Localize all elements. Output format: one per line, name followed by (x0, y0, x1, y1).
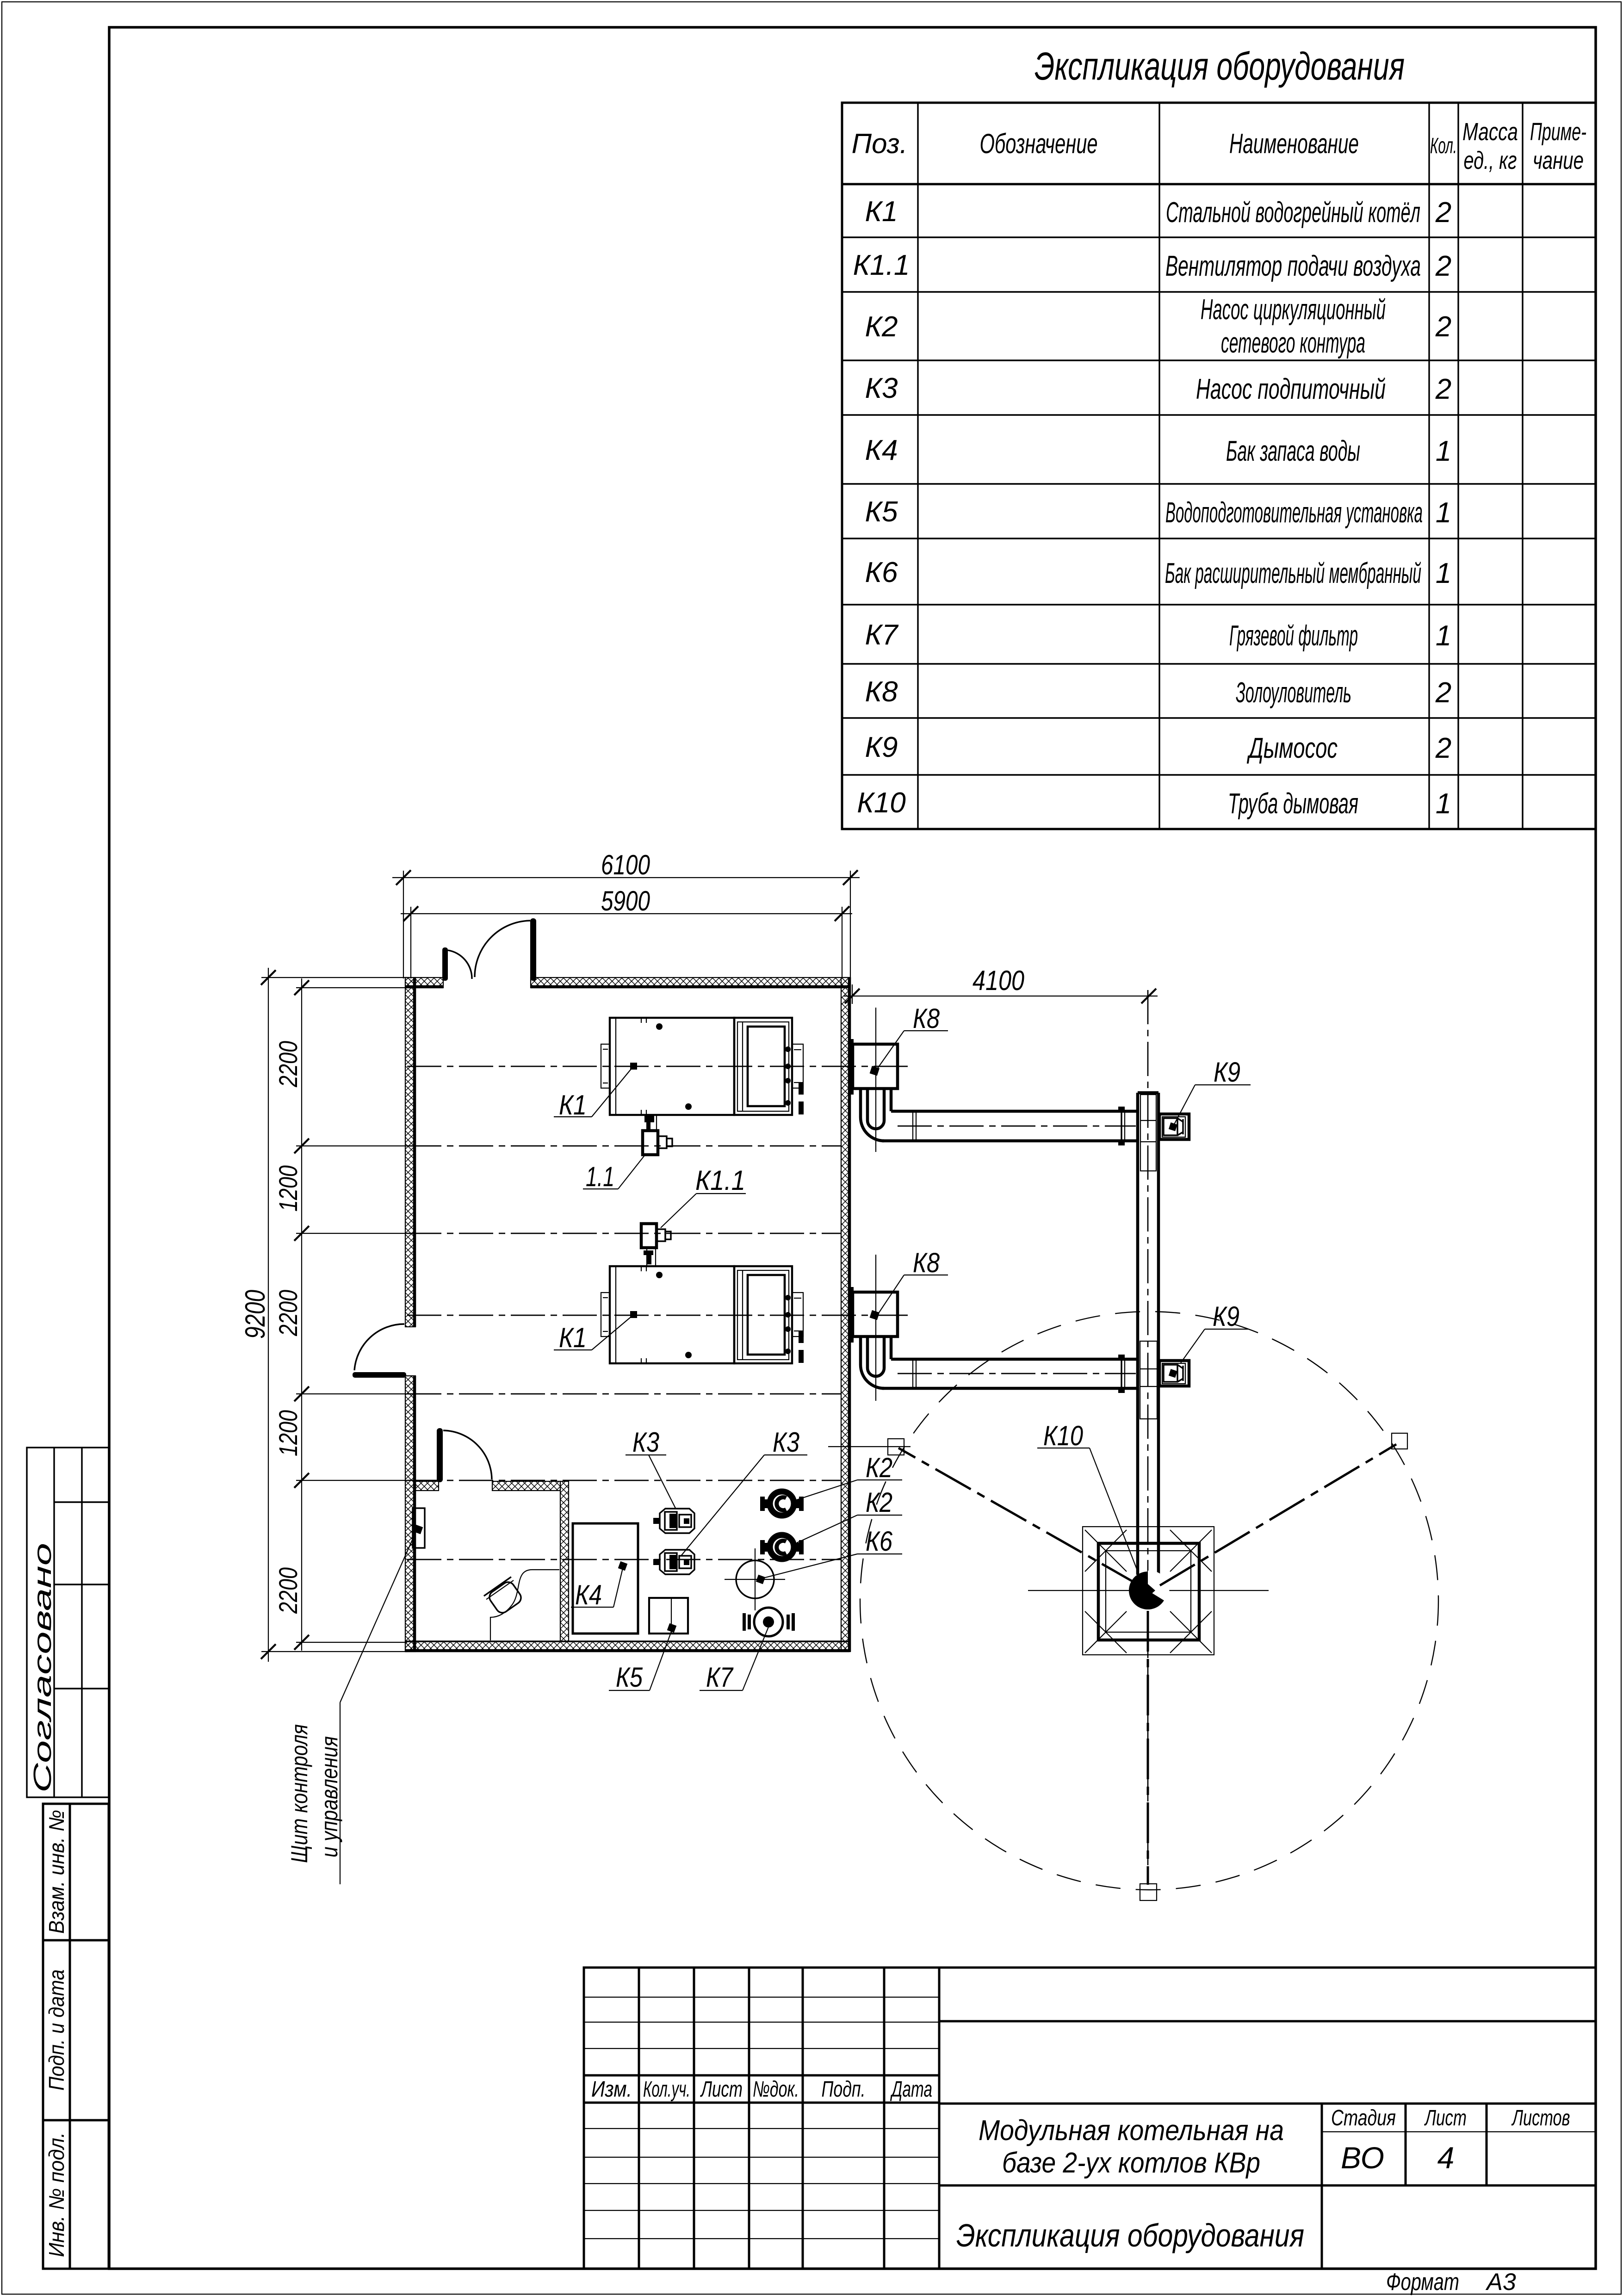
svg-text:Дымосос: Дымосос (1247, 732, 1338, 764)
svg-text:К1.1: К1.1 (853, 249, 910, 281)
svg-text:базе 2-ух котлов КВр: базе 2-ух котлов КВр (1002, 2147, 1260, 2179)
svg-text:Грязевой фильтр: Грязевой фильтр (1229, 620, 1358, 652)
svg-text:1: 1 (1436, 497, 1451, 529)
svg-text:Масса: Масса (1462, 118, 1518, 146)
svg-text:сетевого контура: сетевого контура (1221, 327, 1365, 359)
svg-text:Модульная котельная на: Модульная котельная на (979, 2115, 1284, 2147)
svg-text:1200: 1200 (273, 1165, 303, 1212)
svg-text:К9: К9 (1214, 1057, 1240, 1088)
svg-text:Инв. № подл.: Инв. № подл. (44, 2132, 68, 2257)
svg-text:Водоподготовительная установка: Водоподготовительная установка (1165, 497, 1423, 529)
svg-text:Подп.: Подп. (822, 2077, 866, 2102)
svg-text:К5: К5 (865, 496, 898, 528)
svg-text:К7: К7 (865, 619, 899, 651)
svg-text:1: 1 (1436, 788, 1451, 820)
svg-text:Стадия: Стадия (1331, 2106, 1396, 2130)
svg-text:ед., кг: ед., кг (1464, 147, 1517, 174)
svg-text:К4: К4 (575, 1579, 602, 1610)
svg-text:Бак расширительный мембранный: Бак расширительный мембранный (1165, 557, 1421, 589)
svg-text:9200: 9200 (240, 1290, 271, 1339)
svg-text:К9: К9 (865, 731, 898, 763)
svg-text:А3: А3 (1485, 2269, 1516, 2296)
svg-text:№док.: №док. (753, 2077, 799, 2102)
svg-text:К7: К7 (706, 1662, 734, 1693)
svg-text:Лист: Лист (700, 2077, 743, 2102)
svg-text:К1: К1 (559, 1322, 587, 1353)
svg-text:К1.1: К1.1 (695, 1165, 745, 1196)
svg-text:4: 4 (1437, 2141, 1455, 2175)
svg-text:6100: 6100 (601, 849, 650, 880)
svg-text:2: 2 (1435, 250, 1451, 282)
svg-text:К8: К8 (913, 1003, 940, 1034)
svg-text:Кол.уч.: Кол.уч. (643, 2077, 690, 2102)
svg-text:К10: К10 (857, 787, 906, 819)
svg-text:1: 1 (1436, 435, 1451, 467)
svg-text:К8: К8 (865, 676, 898, 708)
svg-text:Подп. и дата: Подп. и дата (44, 1969, 68, 2091)
svg-text:К5: К5 (616, 1662, 643, 1693)
svg-text:2200: 2200 (273, 1290, 303, 1337)
svg-text:К1: К1 (559, 1089, 587, 1120)
svg-text:2: 2 (1435, 197, 1451, 229)
svg-text:2: 2 (1435, 373, 1451, 405)
svg-text:Наименование: Наименование (1229, 128, 1359, 159)
svg-text:К9: К9 (1213, 1301, 1239, 1332)
svg-text:Бак запаса воды: Бак запаса воды (1226, 435, 1360, 467)
svg-text:и управления: и управления (316, 1736, 342, 1857)
svg-text:Труба дымовая: Труба дымовая (1228, 788, 1358, 820)
svg-text:К10: К10 (1043, 1420, 1083, 1451)
svg-text:К6: К6 (865, 557, 898, 588)
svg-text:Дата: Дата (890, 2077, 932, 2102)
svg-text:К3: К3 (773, 1427, 799, 1458)
svg-text:Взам. инв. №: Взам. инв. № (44, 1810, 68, 1934)
svg-text:К8: К8 (913, 1247, 940, 1278)
svg-text:чание: чание (1533, 147, 1584, 174)
svg-text:К1: К1 (865, 196, 898, 228)
svg-text:Лист: Лист (1424, 2106, 1467, 2130)
svg-text:Золоуловитель: Золоуловитель (1236, 677, 1351, 709)
svg-text:К3: К3 (632, 1427, 659, 1458)
svg-text:Изм.: Изм. (591, 2077, 632, 2102)
svg-text:2: 2 (1435, 311, 1451, 343)
svg-text:К6: К6 (866, 1526, 893, 1557)
svg-text:1200: 1200 (273, 1410, 303, 1456)
svg-text:Вентилятор подачи воздуха: Вентилятор подачи воздуха (1165, 250, 1421, 282)
svg-text:Насос циркуляционный: Насос циркуляционный (1201, 294, 1386, 326)
svg-text:ВО: ВО (1341, 2141, 1384, 2175)
svg-text:Кол.: Кол. (1430, 134, 1457, 158)
svg-text:2200: 2200 (273, 1041, 303, 1088)
svg-text:5900: 5900 (601, 885, 650, 916)
svg-text:2200: 2200 (273, 1567, 303, 1614)
svg-text:К4: К4 (865, 434, 898, 466)
svg-text:К2: К2 (866, 1487, 892, 1518)
svg-text:Экспликация оборудования: Экспликация оборудования (1035, 44, 1405, 88)
svg-text:К2: К2 (865, 311, 898, 343)
svg-text:2: 2 (1435, 732, 1451, 764)
svg-text:Поз.: Поз. (852, 128, 908, 159)
svg-text:Приме-: Приме- (1530, 118, 1586, 146)
svg-text:2: 2 (1435, 677, 1451, 709)
svg-text:Согласовано: Согласовано (29, 1543, 56, 1793)
svg-text:К3: К3 (865, 372, 898, 404)
svg-text:Обозначение: Обозначение (980, 128, 1098, 159)
svg-text:Формат: Формат (1386, 2269, 1459, 2296)
svg-text:1.1: 1.1 (586, 1161, 614, 1192)
svg-text:Насос подпиточный: Насос подпиточный (1196, 373, 1386, 405)
svg-text:К2: К2 (866, 1452, 892, 1483)
svg-text:Экспликация оборудования: Экспликация оборудования (956, 2217, 1304, 2253)
svg-text:4100: 4100 (973, 965, 1024, 996)
svg-text:1: 1 (1436, 620, 1451, 652)
svg-text:Листов: Листов (1511, 2106, 1570, 2130)
svg-text:1: 1 (1436, 557, 1451, 589)
svg-text:Стальной водогрейный котёл: Стальной водогрейный котёл (1166, 197, 1420, 229)
svg-text:Щит контроля: Щит контроля (286, 1724, 312, 1863)
